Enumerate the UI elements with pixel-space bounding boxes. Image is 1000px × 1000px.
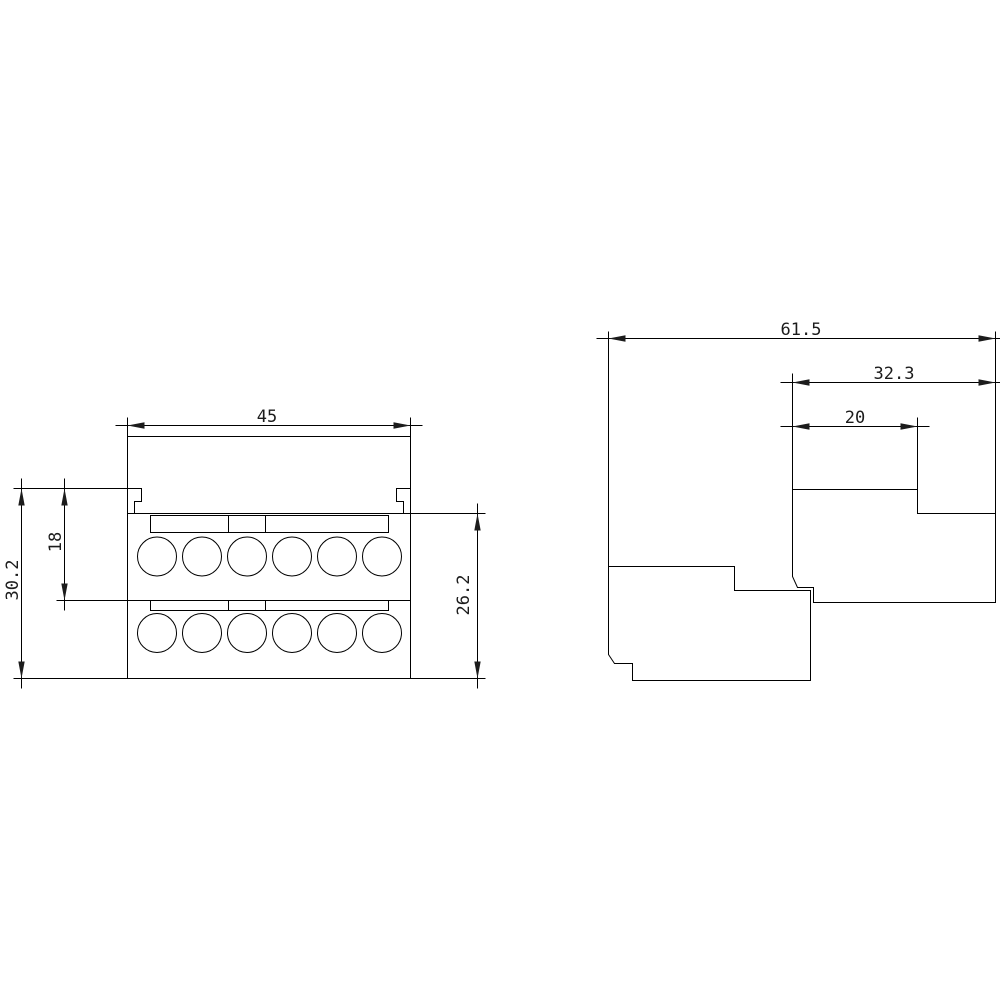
technical-drawing: 45 30.2 18 26.2 61.5 32.3 bbox=[0, 0, 1000, 1000]
dim-top-step-depth-label: 20 bbox=[845, 408, 865, 428]
dim-upper-height-label: 18 bbox=[46, 532, 66, 552]
dim-overall-height-label: 30.2 bbox=[3, 560, 23, 601]
dim-overall-depth-label: 61.5 bbox=[781, 320, 822, 340]
drawing-background bbox=[0, 0, 1000, 1000]
dim-width-label: 45 bbox=[257, 407, 277, 427]
dim-upper-depth-label: 32.3 bbox=[874, 364, 915, 384]
dim-body-height-label: 26.2 bbox=[454, 575, 474, 616]
